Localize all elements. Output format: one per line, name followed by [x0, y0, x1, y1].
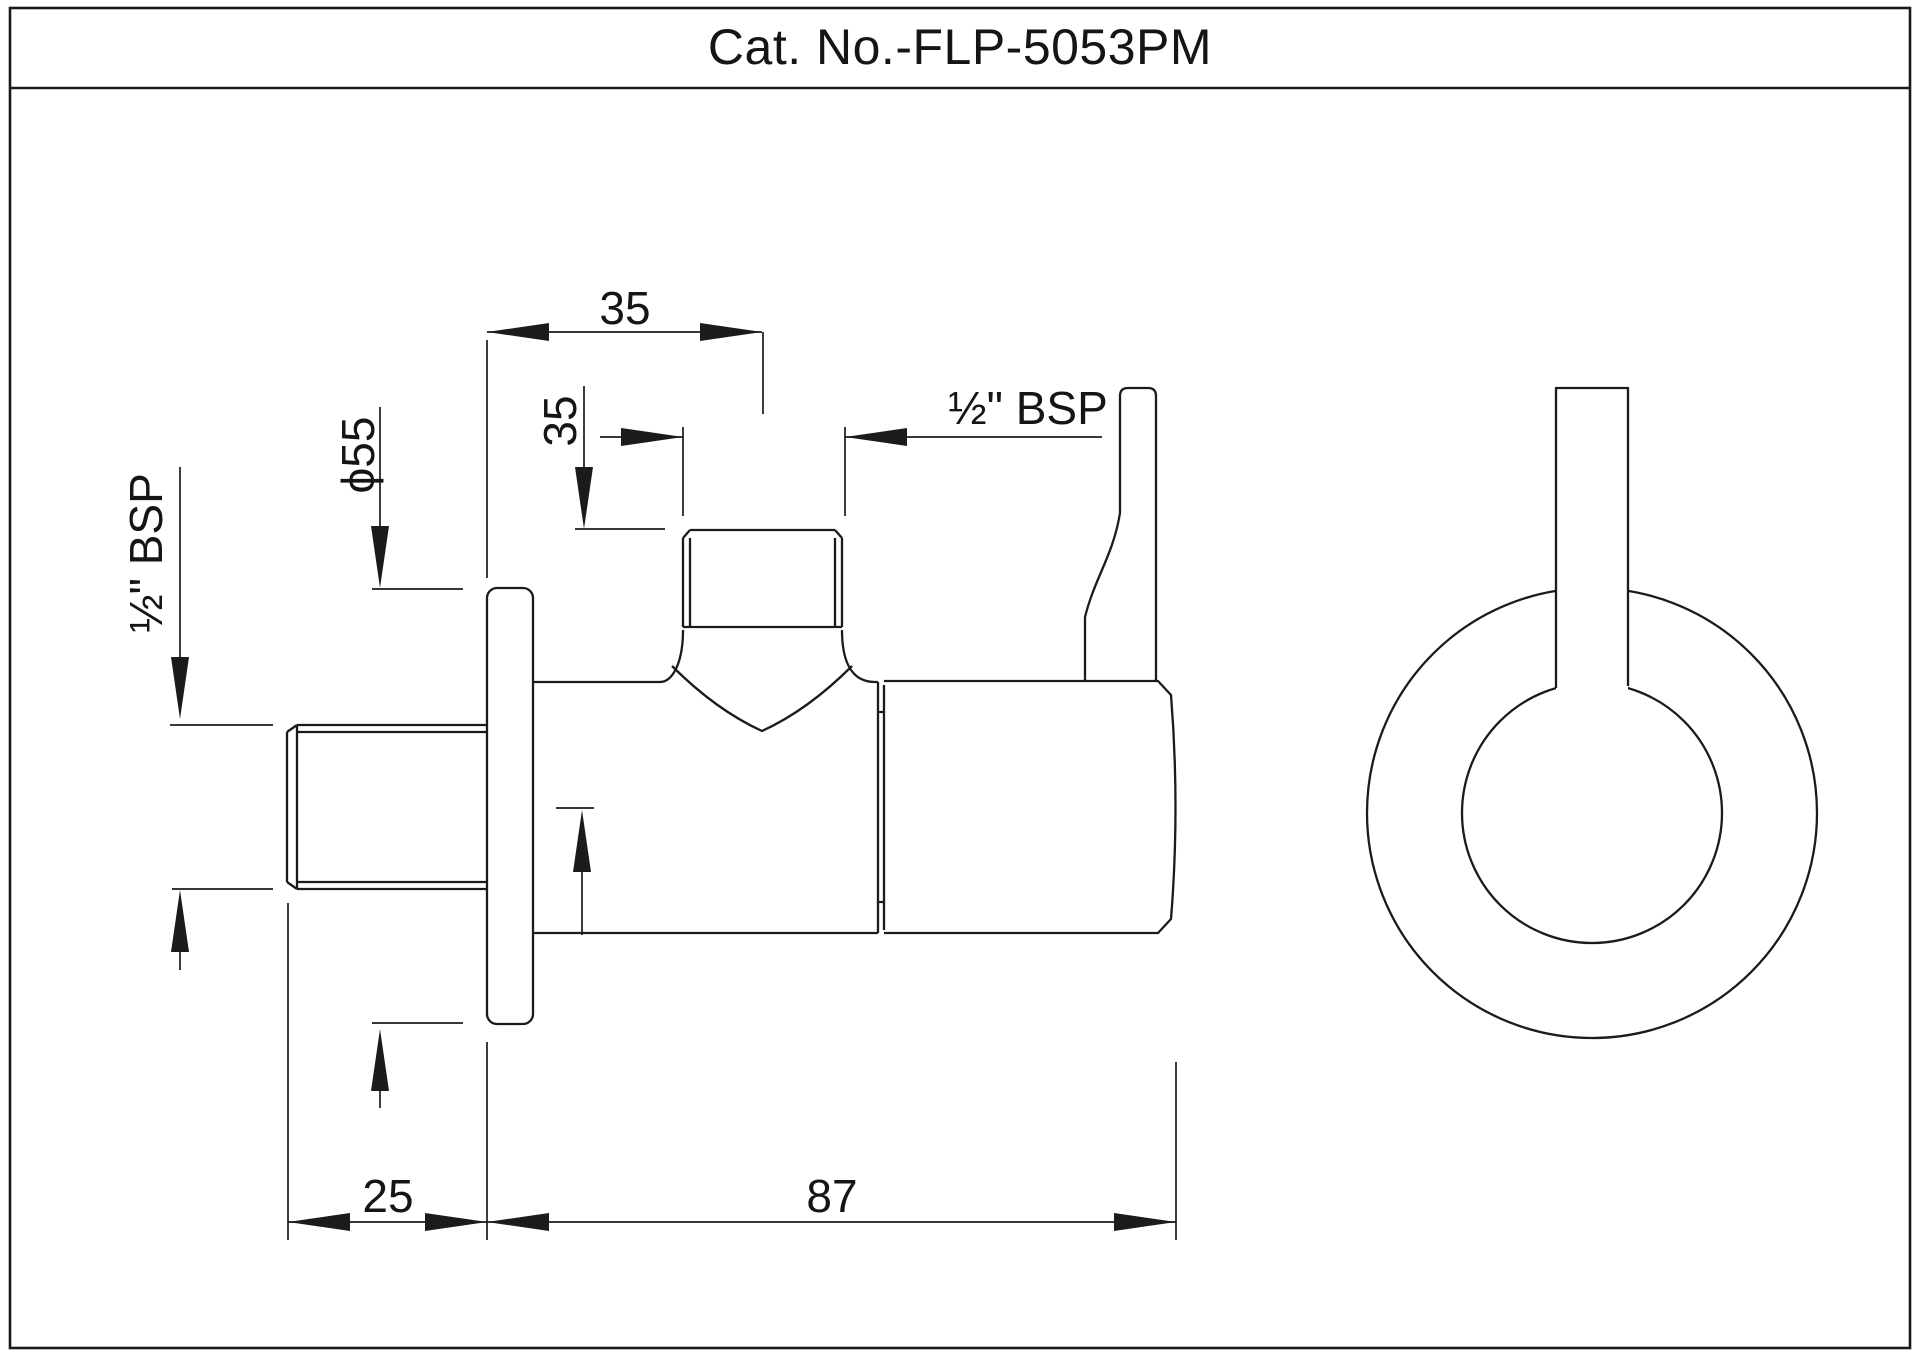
- inlet-thread-outline: [287, 725, 487, 889]
- ball-seat-curves: [672, 666, 852, 731]
- handle-front-mask: [1556, 388, 1628, 695]
- dim-outlet-height-label: 35: [534, 395, 586, 446]
- front-view: [1367, 388, 1817, 1038]
- drawing-sheet: Cat. No.-FLP-5053PM 35: [0, 0, 1920, 1356]
- dimension-arrowheads: [171, 323, 1176, 1231]
- dim-outlet-thread-label: ½" BSP: [948, 382, 1108, 434]
- dimension-lines: [180, 332, 1176, 1222]
- outlet-thread-outline: [683, 530, 842, 627]
- body-outline: [533, 630, 878, 933]
- extension-lines: [170, 332, 1176, 1240]
- dim-inlet-length-label: 25: [362, 1170, 413, 1222]
- dim-flange-diameter-label: ϕ55: [332, 417, 384, 494]
- side-view: [287, 388, 1176, 1024]
- cap-front-circle: [1462, 683, 1722, 943]
- catalog-number-title: Cat. No.-FLP-5053PM: [708, 19, 1212, 75]
- technical-drawing: Cat. No.-FLP-5053PM 35: [0, 0, 1920, 1356]
- dimension-annotations: 35 35 ½" BSP ϕ55 ½" BSP 25 87: [120, 282, 1176, 1240]
- body-cap-seam: [878, 682, 884, 933]
- dim-body-length-label: 87: [806, 1170, 857, 1222]
- dim-inlet-thread-label: ½" BSP: [120, 473, 172, 633]
- flange-outline: [487, 588, 533, 1024]
- cap-outline: [884, 681, 1176, 933]
- dim-top-width-label: 35: [599, 282, 650, 334]
